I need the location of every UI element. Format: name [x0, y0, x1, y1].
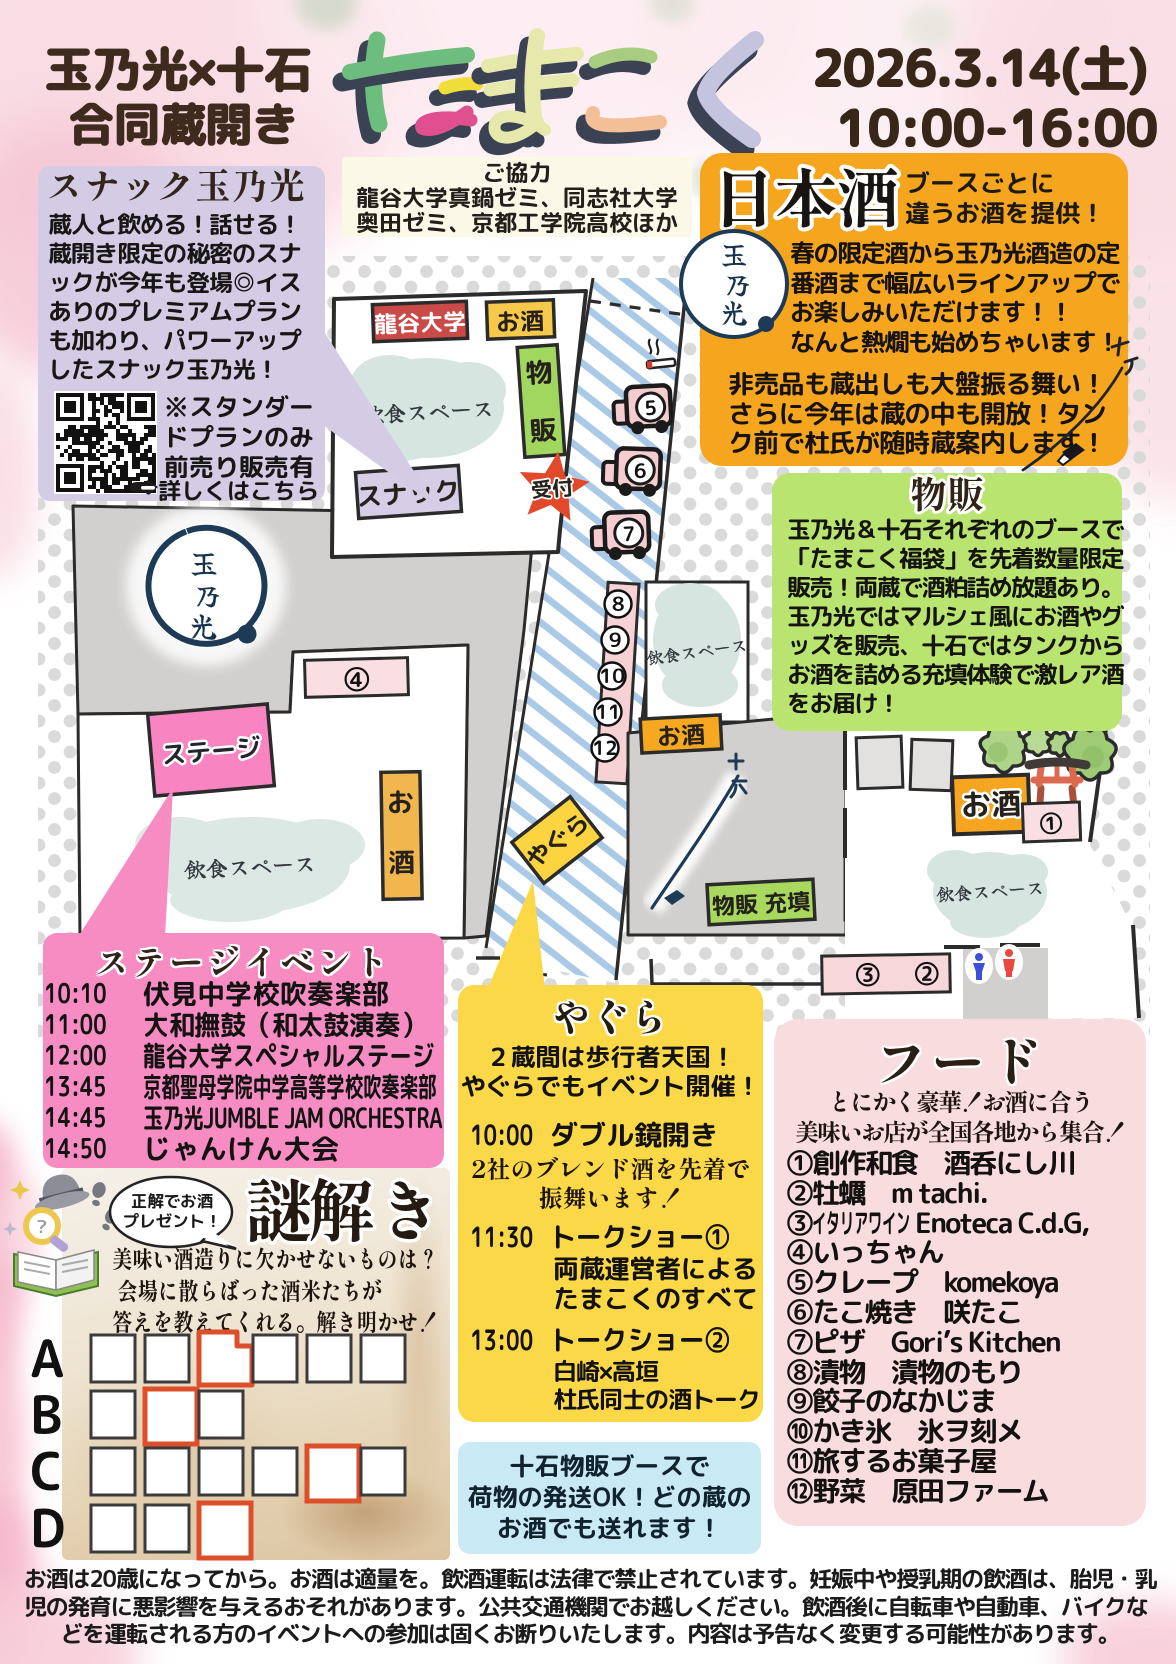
svg-text:物販 充填: 物販 充填 — [711, 885, 812, 922]
svg-text:?: ? — [36, 1214, 47, 1239]
svg-text:D: D — [30, 1491, 65, 1564]
svg-text:11: 11 — [595, 698, 621, 726]
svg-text:お: お — [387, 783, 415, 821]
svg-text:お酒: お酒 — [960, 782, 1021, 826]
svg-text:お酒: お酒 — [656, 717, 706, 753]
svg-text:10: 10 — [599, 662, 625, 690]
svg-text:8: 8 — [612, 590, 625, 618]
svg-text:光: 光 — [188, 603, 218, 647]
svg-text:③: ③ — [855, 957, 881, 993]
svg-text:お酒: お酒 — [495, 303, 544, 339]
svg-text:光: 光 — [719, 291, 748, 333]
svg-text:酒: 酒 — [388, 843, 416, 881]
svg-text:②: ② — [914, 956, 940, 992]
svg-text:6: 6 — [633, 457, 647, 485]
svg-text:受付: 受付 — [530, 472, 574, 505]
svg-text:7: 7 — [622, 520, 636, 548]
svg-text:物: 物 — [524, 352, 554, 392]
svg-text:販: 販 — [528, 410, 558, 450]
svg-text:①: ① — [1038, 806, 1063, 841]
svg-text:④: ④ — [344, 660, 371, 698]
svg-text:12: 12 — [592, 734, 618, 762]
svg-text:物販: 物販 — [910, 465, 984, 519]
svg-text:9: 9 — [609, 626, 622, 654]
svg-text:5: 5 — [644, 394, 658, 423]
